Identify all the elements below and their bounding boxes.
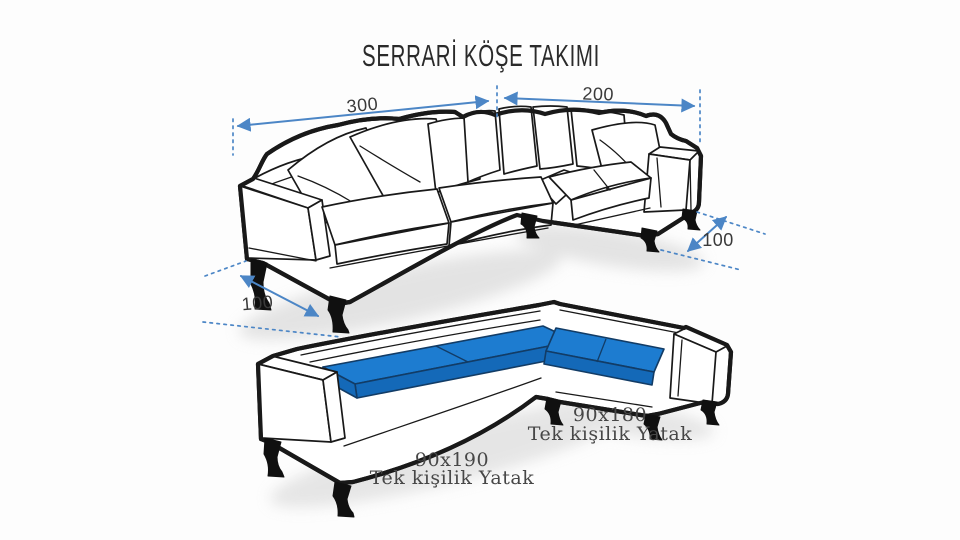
back-pillow (533, 106, 573, 169)
back-pillow (499, 106, 537, 174)
sofa-foot (264, 438, 284, 477)
dim-label-200: 200 (582, 83, 614, 104)
page-title: SERRARİ KÖŞE TAKIMI (362, 38, 600, 73)
sofa-foot (701, 400, 719, 425)
right-armrest (644, 147, 699, 212)
sofa-dimension-diagram: SERRARİ KÖŞE TAKIMI (0, 0, 960, 540)
dim-label-300: 300 (346, 94, 379, 117)
diagram-canvas: SERRARİ KÖŞE TAKIMI (0, 0, 960, 540)
extension-line (205, 261, 246, 276)
back-pillow (464, 111, 500, 182)
dim-label-depth-right: 100 (702, 230, 734, 250)
dim-label-depth-left: 100 (241, 292, 274, 315)
bed-type-left: Tek kişilik Yatak (370, 467, 535, 489)
bed-type-right: Tek kişilik Yatak (528, 423, 693, 445)
